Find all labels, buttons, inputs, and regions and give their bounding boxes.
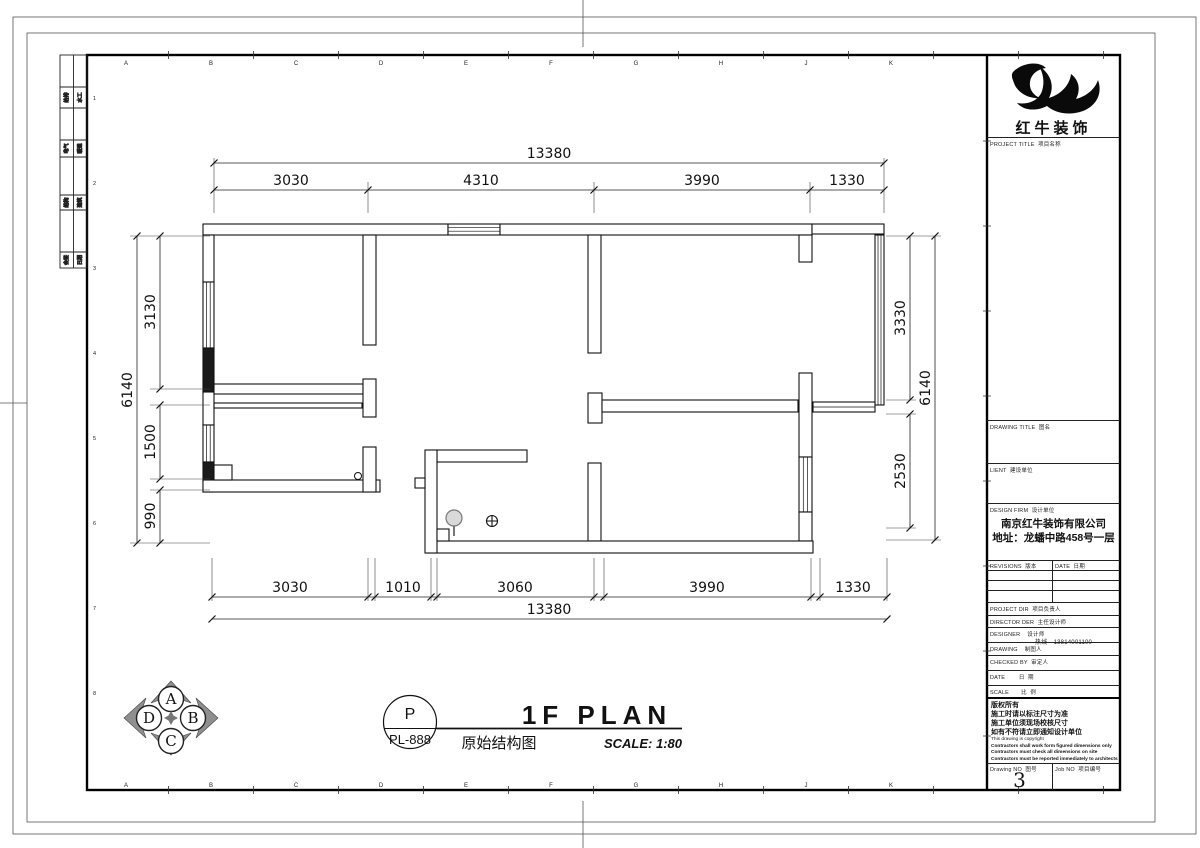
- strip-label: 建筑: [77, 197, 84, 207]
- copyright-line: 施工单位须现场校核尺寸: [991, 719, 1118, 728]
- grid-letter: J: [805, 783, 808, 789]
- ref-bubble-number: PL-888: [389, 732, 431, 747]
- dim-left: 1500: [143, 424, 159, 460]
- copyright-line: 施工时请以标注尺寸为准: [991, 710, 1118, 719]
- divider: [987, 590, 1120, 591]
- divider: [987, 560, 1120, 561]
- grid-letter: D: [379, 61, 384, 67]
- drawing-by-label: DRAWING 制图人: [990, 645, 1042, 653]
- divider: [987, 615, 1120, 616]
- compass-letter-a: A: [165, 690, 177, 708]
- grid-letter: A: [124, 783, 128, 789]
- drawing-titlebar: P PL-888 1F PLAN 原始结构图 SCALE: 1:80: [384, 696, 683, 753]
- title-block: 红牛装饰 PROJECT TITLE 项目名称 DRAWING TITLE 图名…: [987, 55, 1120, 790]
- dim-top: 4310: [463, 173, 499, 189]
- plan-title: 1F PLAN: [522, 700, 672, 730]
- grid-letter: E: [464, 61, 468, 67]
- director-label: DIRECTOR DER 主任设计师: [990, 618, 1066, 626]
- grid-number: 7: [93, 606, 96, 612]
- grid-number: 3: [93, 266, 96, 272]
- checked-by-label: CHECKED BY 审定人: [990, 658, 1048, 666]
- divider: [987, 763, 1120, 764]
- dim-right: 3330: [893, 300, 909, 336]
- drawing-no-value: 3: [987, 768, 1052, 792]
- design-firm-name: 南京红牛装饰有限公司: [987, 516, 1120, 531]
- copyright-line: 版权所有: [991, 701, 1118, 710]
- design-firm-label: DESIGN FIRM 设计单位: [990, 506, 1055, 514]
- grid-letter: G: [634, 61, 639, 67]
- dim-bottom: 1330: [835, 580, 871, 596]
- copyright-line-en: This drawing is copyright: [991, 737, 1118, 744]
- dim-top: 3990: [684, 173, 720, 189]
- drawing-title-label: DRAWING TITLE 图名: [990, 423, 1050, 431]
- strip-label: 暖通: [77, 143, 84, 153]
- copyright-line: 如有不符请立即通知设计单位: [991, 728, 1118, 737]
- table-divider: [1052, 763, 1053, 790]
- dim-top: 1330: [829, 173, 865, 189]
- thick-divider: [987, 697, 1120, 699]
- grid-letter: J: [805, 61, 808, 67]
- signature-strip: 给排 水工 电气 暖通 结构 建筑 会签 日期: [60, 55, 87, 268]
- strip-label: 会签: [63, 255, 70, 265]
- floor-drain-symbol: [487, 516, 498, 527]
- divider: [987, 685, 1120, 686]
- pipe-riser-symbol: [446, 510, 462, 526]
- compass-letter-d: D: [143, 709, 155, 727]
- drain-symbol: [355, 473, 362, 480]
- grid-letter: B: [209, 61, 213, 67]
- dim-bottom: 1010: [385, 580, 421, 596]
- grid-number: 1: [93, 96, 96, 102]
- revision-date-label: DATE 日期: [1055, 562, 1085, 570]
- drawing-sheet: A B C D E F G H J K A B C D E F G H J K …: [0, 0, 1200, 848]
- grid-number: 2: [93, 181, 96, 187]
- divider: [987, 670, 1120, 671]
- divider: [987, 580, 1120, 581]
- plan-subtitle: 原始结构图: [461, 735, 536, 752]
- dim-right: 2530: [893, 453, 909, 489]
- window-mullions: [207, 228, 881, 512]
- project-title-label: PROJECT TITLE 项目名称: [990, 140, 1061, 148]
- dim-bottom: 3990: [689, 580, 725, 596]
- strip-label: 日期: [78, 255, 84, 265]
- dim-bottom: 3060: [497, 580, 533, 596]
- job-no-label: Job NO 项目编号: [1055, 765, 1101, 773]
- grid-letter: E: [464, 783, 468, 789]
- grid-letter: H: [719, 61, 723, 67]
- grid-letter: G: [634, 783, 639, 789]
- dim-bottom: 3030: [272, 580, 308, 596]
- grid-letter: K: [889, 61, 893, 67]
- grid-letter: F: [549, 783, 553, 789]
- grid-number: 4: [93, 351, 96, 357]
- floor-plan-walls: [203, 224, 884, 553]
- design-firm-address: 地址：龙蟠中路458号一层: [987, 530, 1120, 545]
- dim-top: 3030: [273, 173, 309, 189]
- ref-bubble-top: P: [405, 706, 416, 723]
- plan-scale: SCALE: 1:80: [604, 736, 683, 751]
- grid-letter: A: [124, 61, 128, 67]
- dim-left-outer: 6140: [120, 372, 136, 408]
- strip-label: 水工: [77, 92, 84, 102]
- strip-label: 给排: [63, 92, 70, 102]
- divider: [987, 655, 1120, 656]
- grid-letter: D: [379, 783, 384, 789]
- grid-number: 5: [93, 436, 96, 442]
- client-label: LIENT 建设单位: [990, 466, 1033, 474]
- company-logo-icon: [999, 58, 1109, 116]
- table-divider: [1052, 560, 1053, 602]
- divider: [987, 503, 1120, 504]
- divider: [987, 463, 1120, 464]
- dim-bottom-total: 13380: [527, 602, 572, 618]
- grid-number: 6: [93, 521, 96, 527]
- grid-letter: B: [209, 783, 213, 789]
- project-dir-label: PROJECT DIR 项目负责人: [990, 605, 1061, 613]
- strip-label: 电气: [63, 143, 70, 153]
- divider: [987, 642, 1120, 643]
- divider: [987, 420, 1120, 421]
- grid-number: 8: [93, 691, 96, 697]
- dim-top-total: 13380: [527, 146, 572, 162]
- grid-letter: F: [549, 61, 553, 67]
- compass: A B C D: [124, 681, 218, 755]
- strip-label: 结构: [63, 197, 70, 207]
- company-name: 红牛装饰: [987, 117, 1120, 138]
- divider: [987, 602, 1120, 603]
- divider: [987, 570, 1120, 571]
- grid-letter: H: [719, 783, 723, 789]
- grid-letter: C: [294, 783, 299, 789]
- dim-left: 990: [143, 503, 159, 530]
- dim-left: 3130: [143, 294, 159, 330]
- compass-letter-b: B: [187, 709, 198, 727]
- grid-letter: C: [294, 61, 299, 67]
- dim-right-outer: 6140: [918, 370, 934, 406]
- copyright-block: 版权所有 施工时请以标注尺寸为准 施工单位须现场校核尺寸 如有不符请立即通知设计…: [991, 701, 1118, 763]
- inner-frame: [87, 55, 1120, 790]
- date-label: DATE 日 期: [990, 673, 1034, 681]
- revisions-label: REVISIONS 版本: [990, 562, 1037, 570]
- scale-label: SCALE 比 例: [990, 688, 1036, 696]
- compass-center-star: [164, 711, 178, 725]
- compass-letter-c: C: [165, 732, 176, 750]
- divider: [987, 137, 1120, 138]
- divider: [987, 627, 1120, 628]
- copyright-line-en: Contractors must check all dimensions on…: [991, 750, 1118, 757]
- grid-letter: K: [889, 783, 893, 789]
